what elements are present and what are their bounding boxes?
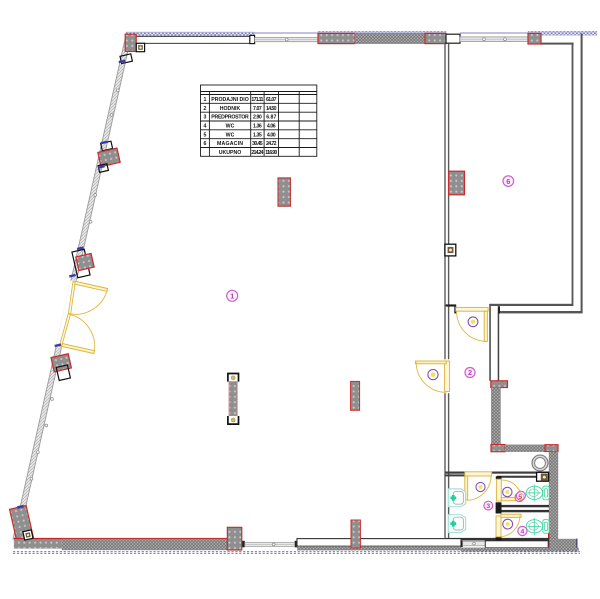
svg-text:4: 4 xyxy=(203,124,206,130)
svg-text:UKUPNO: UKUPNO xyxy=(219,150,241,156)
svg-text:MAGACIN: MAGACIN xyxy=(217,141,243,147)
svg-text:HODNIK: HODNIK xyxy=(220,106,241,112)
svg-text:3: 3 xyxy=(203,115,206,121)
svg-text:PREDPROSTOR: PREDPROSTOR xyxy=(211,115,249,121)
svg-text:14.50: 14.50 xyxy=(266,106,277,112)
svg-text:4: 4 xyxy=(521,529,525,536)
svg-text:6: 6 xyxy=(506,177,510,186)
svg-text:PRODAJNI DIO: PRODAJNI DIO xyxy=(211,97,249,103)
svg-text:6.87: 6.87 xyxy=(266,115,276,121)
svg-text:116.90: 116.90 xyxy=(265,150,277,156)
svg-text:61.07: 61.07 xyxy=(266,97,277,103)
svg-text:1.35: 1.35 xyxy=(253,132,262,138)
svg-text:24.72: 24.72 xyxy=(266,141,277,147)
svg-text:3: 3 xyxy=(486,503,490,510)
svg-text:5: 5 xyxy=(518,494,522,501)
svg-text:1: 1 xyxy=(203,97,206,103)
svg-text:2.90: 2.90 xyxy=(253,115,262,121)
svg-text:5: 5 xyxy=(203,132,206,138)
svg-text:WC: WC xyxy=(226,132,235,138)
svg-text:7.07: 7.07 xyxy=(253,106,262,112)
svg-text:1.36: 1.36 xyxy=(253,124,262,130)
svg-text:6: 6 xyxy=(203,141,206,147)
svg-text:2: 2 xyxy=(468,368,472,377)
svg-text:171.11: 171.11 xyxy=(251,97,263,103)
svg-text:WC: WC xyxy=(226,124,235,130)
svg-text:4.00: 4.00 xyxy=(267,132,276,138)
svg-text:2: 2 xyxy=(203,106,206,112)
svg-text:4.06: 4.06 xyxy=(267,124,276,130)
svg-text:214.24: 214.24 xyxy=(251,150,263,156)
svg-text:30.45: 30.45 xyxy=(252,141,263,147)
